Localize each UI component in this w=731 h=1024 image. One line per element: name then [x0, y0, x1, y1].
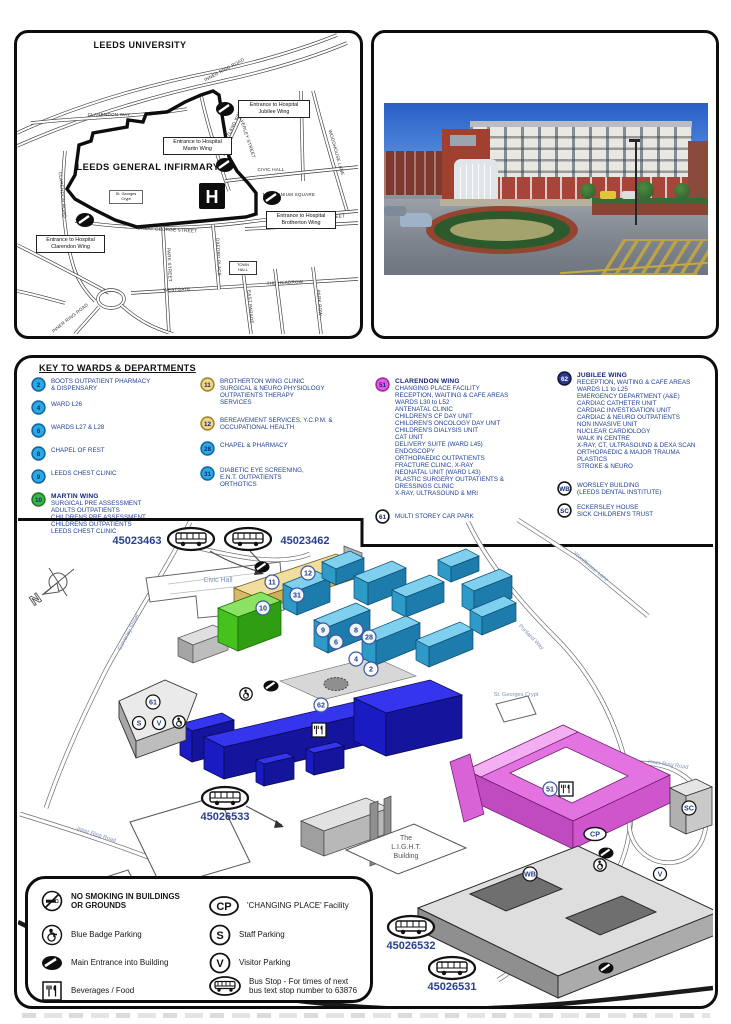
entrance-box-martin: Entrance to Hospital Martin Wing [163, 137, 232, 155]
svg-text:SC: SC [560, 508, 569, 515]
svg-text:12: 12 [204, 421, 212, 428]
svg-text:L.I.G.H.T.: L.I.G.H.T. [391, 844, 421, 851]
svg-text:6: 6 [334, 638, 338, 647]
campus-panel: KEY TO WARDS & DEPARTMENTS 2BOOTS OUTPAT… [14, 355, 718, 1009]
photo-entrance-glass [460, 164, 492, 199]
crypt-label: St. Georges Crypt [109, 190, 143, 204]
leaflet-page: INNER RING ROAD CLARENDON WAY CLARENDON … [0, 0, 731, 1024]
svg-text:S: S [137, 719, 142, 728]
photo-ambulance [600, 191, 616, 199]
svg-text:2: 2 [369, 665, 373, 674]
hospital-photo [384, 103, 708, 275]
svg-text:S: S [216, 930, 223, 942]
svg-text:Calverley Street: Calverley Street [117, 613, 141, 651]
svg-text:SC: SC [684, 804, 694, 813]
svg-text:The: The [400, 835, 412, 842]
legend-blue-badge: Blue Badge Parking [40, 923, 142, 947]
key-column-4: 62JUBILEE WINGRECEPTION, WAITING & CAFE … [557, 372, 721, 527]
svg-text:45026532: 45026532 [387, 940, 436, 952]
map-legend: NO SMOKING IN BUILDINGS OR GROUNDS Blue … [25, 876, 373, 1003]
key-entry: 28CHAPEL & PHARMACY [200, 442, 376, 456]
beverages-icon [40, 979, 64, 1003]
photo-tree [636, 181, 654, 199]
compass-icon: N [27, 568, 74, 608]
svg-text:CIVIC HALL: CIVIC HALL [257, 167, 284, 172]
svg-text:28: 28 [204, 446, 212, 453]
key-column-3: 51CLARENDON WINGCHANGING PLACE FACILITY … [375, 378, 557, 533]
key-entry: 12BEREAVEMENT SERVICES, Y.C.P.M. & OCCUP… [200, 417, 376, 431]
svg-text:N: N [27, 590, 44, 609]
infirmary-label: LEEDS GENERAL INFIRMARY [72, 161, 224, 172]
svg-text:9: 9 [37, 474, 41, 481]
svg-text:CLARENDON ROAD: CLARENDON ROAD [58, 172, 68, 219]
svg-text:45026533: 45026533 [201, 811, 250, 823]
svg-text:62: 62 [317, 701, 325, 710]
photo-ambulance [622, 191, 636, 199]
svg-text:CP: CP [216, 901, 231, 913]
key-entry: 62JUBILEE WINGRECEPTION, WAITING & CAFE … [557, 372, 721, 470]
svg-text:THE HEADROW: THE HEADROW [266, 279, 303, 286]
legend-beverages: Beverages / Food [40, 979, 134, 1003]
svg-text:11: 11 [268, 578, 276, 587]
photo-car [384, 206, 406, 216]
key-entry: 51CLARENDON WINGCHANGING PLACE FACILITY … [375, 378, 557, 497]
legend-bus-stop: Bus Stop - For times of next bus text st… [208, 975, 357, 997]
svg-text:4: 4 [354, 655, 358, 664]
photo-lamp-post [635, 141, 637, 225]
key-title: KEY TO WARDS & DEPARTMENTS [39, 363, 196, 373]
svg-text:4: 4 [37, 405, 41, 412]
key-column-2: 11BROTHERTON WING CLINIC SURGICAL & NEUR… [200, 378, 376, 497]
svg-text:61: 61 [149, 698, 157, 707]
svg-text:10: 10 [259, 604, 267, 613]
key-entry: 6WARDS L27 & L28 [31, 424, 199, 438]
town-hall-label: TOWN HALL [229, 261, 257, 275]
leeds-university-label: LEEDS UNIVERSITY [75, 40, 205, 50]
svg-text:Portland Way: Portland Way [517, 623, 545, 651]
photo-planter-wall [592, 204, 708, 215]
photo-white-floors [470, 127, 692, 177]
visitor-parking-icon: V [208, 951, 232, 975]
cutoff-caption-remnant [22, 1013, 710, 1018]
legend-staff-parking: S Staff Parking [208, 923, 285, 947]
photo-far-right-building [688, 141, 708, 199]
svg-text:31: 31 [204, 471, 212, 478]
svg-text:H: H [206, 187, 219, 207]
svg-text:Civic Hall: Civic Hall [203, 577, 233, 584]
svg-text:12: 12 [304, 569, 312, 578]
main-entrance-icon [40, 951, 64, 975]
svg-text:62: 62 [561, 376, 569, 383]
svg-text:2: 2 [37, 382, 41, 389]
svg-text:CLARENDON WAY: CLARENDON WAY [88, 112, 131, 117]
photo-roundabout-core [450, 219, 554, 241]
key-entry: 4WARD L26 [31, 401, 199, 415]
photo-tower-panel [450, 135, 476, 146]
cp-icon: CP [208, 895, 240, 917]
svg-text:45023462: 45023462 [281, 535, 330, 547]
photo-tree [580, 183, 596, 199]
photo-left-wing [384, 151, 448, 195]
svg-text:INNER RING ROAD: INNER RING ROAD [51, 302, 90, 334]
svg-text:9: 9 [321, 626, 325, 635]
legend-no-smoking: NO SMOKING IN BUILDINGS OR GROUNDS [40, 889, 180, 913]
svg-text:WB: WB [524, 870, 536, 879]
svg-text:51: 51 [379, 382, 387, 389]
key-entry: 2BOOTS OUTPATIENT PHARMACY & DISPENSARY [31, 378, 199, 392]
svg-text:Woodhouse Lane: Woodhouse Lane [572, 551, 609, 584]
svg-text:45026531: 45026531 [428, 981, 477, 993]
svg-text:V: V [157, 719, 162, 728]
key-entry: WBWORSLEY BUILDING (LEEDS DENTAL INSTITU… [557, 482, 721, 496]
legend-main-entrance: Main Entrance into Building [40, 951, 168, 975]
svg-text:CP: CP [590, 830, 600, 839]
photo-tree [674, 183, 690, 199]
bus-stop-icon [208, 975, 242, 997]
svg-text:28: 28 [365, 633, 373, 642]
photo-lamp-head [629, 139, 640, 142]
svg-text:11: 11 [204, 382, 211, 389]
blue-badge-icon [40, 923, 64, 947]
key-entry: 9LEEDS CHEST CLINIC [31, 470, 199, 484]
svg-text:10: 10 [35, 497, 43, 504]
entrance-box-jubilee: Entrance to Hospital Jubilee Wing [238, 100, 310, 118]
street-map: INNER RING ROAD CLARENDON WAY CLARENDON … [17, 33, 358, 334]
svg-text:6: 6 [37, 428, 41, 435]
svg-text:31: 31 [293, 591, 301, 600]
no-smoking-icon [40, 889, 64, 913]
svg-text:Building: Building [394, 853, 419, 860]
entrance-box-clarendon: Entrance to Hospital Clarendon Wing [36, 235, 105, 253]
svg-text:45023463: 45023463 [113, 535, 162, 547]
key-entry: 31DIABETIC EYE SCREENING, E.N.T. OUTPATI… [200, 467, 376, 488]
svg-text:V: V [216, 958, 224, 970]
svg-text:St. Georges Crypt: St. Georges Crypt [494, 692, 539, 698]
svg-text:WB: WB [559, 486, 570, 493]
legend-changing-place: CP 'CHANGING PLACE' Facility [208, 895, 349, 917]
svg-text:51: 51 [546, 785, 554, 794]
staff-parking-icon: S [208, 923, 232, 947]
photo-panel [371, 30, 719, 339]
svg-text:8: 8 [354, 626, 358, 635]
street-map-panel: INNER RING ROAD CLARENDON WAY CLARENDON … [14, 30, 363, 339]
svg-text:WESTGATE: WESTGATE [163, 287, 190, 293]
entrance-box-brotherton: Entrance to Hospital Brotherton Wing [266, 211, 336, 229]
st-georges-crypt: St. Georges Crypt [494, 692, 539, 722]
key-entry: 11BROTHERTON WING CLINIC SURGICAL & NEUR… [200, 378, 376, 406]
key-entry: 8CHAPEL OF REST [31, 447, 199, 461]
svg-text:V: V [658, 870, 663, 879]
svg-text:8: 8 [37, 451, 41, 458]
hospital-symbol: H [199, 183, 225, 209]
legend-visitor-parking: V Visitor Parking [208, 951, 290, 975]
key-entry: SCECKERSLEY HOUSE SICK CHILDREN'S TRUST [557, 504, 721, 518]
